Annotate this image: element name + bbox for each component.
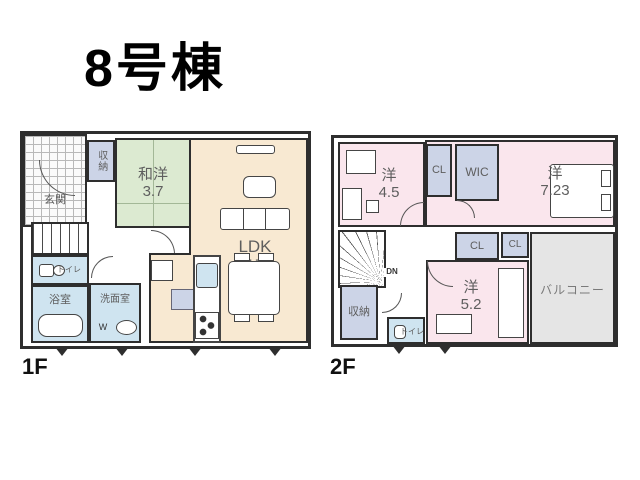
stairs-1f bbox=[31, 222, 89, 255]
floorplan-1f: 玄関 収納 和洋 3.7 LDK 17 トイレ 浴室 洗面室 W bbox=[20, 131, 311, 349]
washroom: 洗面室 W bbox=[89, 283, 141, 343]
sofa bbox=[220, 208, 290, 230]
washitsu-label: 和洋 3.7 bbox=[117, 140, 189, 226]
toilet-bowl-1f bbox=[53, 265, 65, 276]
washitsu-room: 和洋 3.7 bbox=[115, 138, 191, 228]
tv-board bbox=[236, 145, 275, 154]
vent-marker bbox=[392, 345, 406, 354]
desk bbox=[346, 150, 376, 174]
closet-mid1-label: CL bbox=[457, 234, 497, 258]
vent-marker bbox=[115, 347, 129, 356]
washbasin bbox=[116, 320, 137, 335]
stairs-dn-label: DN bbox=[384, 268, 400, 277]
bedroom-723: 洋 7.23 bbox=[425, 140, 615, 227]
stairs-2f bbox=[338, 230, 386, 288]
dining-chair bbox=[234, 253, 250, 261]
kitchen-cabinet bbox=[171, 289, 194, 310]
pillow bbox=[601, 194, 611, 211]
balcony-label: バルコニー bbox=[532, 284, 613, 297]
washer-label: W bbox=[97, 323, 109, 333]
refrigerator bbox=[151, 260, 173, 281]
bedroom52-label: 洋 5.2 bbox=[446, 280, 496, 313]
bathroom: 浴室 bbox=[31, 285, 89, 343]
vent-marker bbox=[188, 347, 202, 356]
vent-marker bbox=[268, 347, 282, 356]
door-arc bbox=[382, 293, 402, 313]
bathtub bbox=[38, 314, 83, 337]
door-arc bbox=[91, 256, 113, 278]
balcony: バルコニー bbox=[530, 232, 615, 344]
toilet-room-2f: トイレ bbox=[387, 317, 425, 344]
desk bbox=[436, 314, 472, 334]
floor1-label: 1F bbox=[22, 354, 48, 380]
chair bbox=[366, 200, 379, 213]
bath-label: 浴室 bbox=[33, 294, 87, 306]
bedroom45-size: 4.5 bbox=[364, 185, 414, 202]
dining-chair bbox=[258, 314, 274, 322]
vent-marker bbox=[438, 345, 452, 354]
toilet-fixture-2f bbox=[394, 325, 406, 339]
coffee-table bbox=[243, 176, 276, 198]
dining-chair bbox=[258, 253, 274, 261]
floorplan-2f: 洋 4.5 洋 7.23 CL WIC CL CL 洋 5.2 bbox=[331, 135, 618, 347]
stove bbox=[195, 312, 219, 339]
bedroom52-name: 洋 bbox=[446, 280, 496, 297]
wic: WIC bbox=[455, 144, 499, 201]
storage-closet-1f: 収納 bbox=[87, 140, 115, 182]
bed bbox=[550, 164, 614, 218]
door-arc bbox=[151, 230, 175, 254]
wic-label: WIC bbox=[457, 146, 497, 199]
vent-marker bbox=[55, 347, 69, 356]
toilet-fixture-1f bbox=[39, 264, 54, 277]
closet-top-label: CL bbox=[428, 146, 450, 195]
storage-closet-2f: 収納 bbox=[340, 285, 378, 340]
senmen-label: 洗面室 bbox=[91, 294, 139, 305]
storage-label-2f: 収納 bbox=[342, 287, 376, 338]
floor2-label: 2F bbox=[330, 354, 356, 380]
dining-chair bbox=[234, 314, 250, 322]
washitsu-size: 3.7 bbox=[143, 183, 164, 200]
pillow bbox=[601, 170, 611, 187]
page-title: 8号棟 bbox=[84, 26, 226, 101]
dining-table bbox=[228, 261, 280, 315]
closet-mid2-label: CL bbox=[503, 234, 527, 256]
closet-mid-2: CL bbox=[501, 232, 529, 258]
closet-top: CL bbox=[426, 144, 452, 197]
bed bbox=[498, 268, 524, 338]
closet-mid-1: CL bbox=[455, 232, 499, 260]
toilet-room-1f: トイレ bbox=[31, 255, 89, 285]
shelf bbox=[342, 188, 362, 220]
storage-label-1f: 収納 bbox=[89, 142, 113, 180]
bedroom52-size: 5.2 bbox=[446, 297, 496, 314]
kitchen-sink bbox=[196, 263, 218, 288]
washitsu-name: 和洋 bbox=[138, 166, 168, 183]
